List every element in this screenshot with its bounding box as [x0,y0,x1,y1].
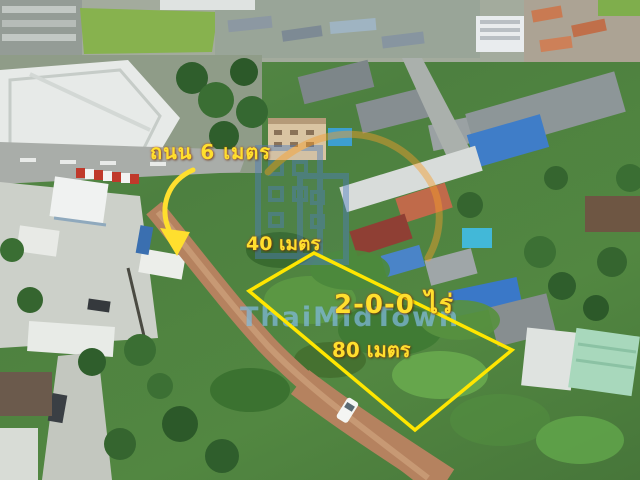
road-arrow-shaft [165,170,193,230]
road-arrow-head [160,228,190,256]
road-width-label: ถนน 6 เมตร [150,141,271,163]
frontage-label: 40 เมตร [246,234,321,255]
aerial-photo: ThaiMidTown ถนน 6 เมตร 40 เมตร 2-0-0 ไร่… [0,0,640,480]
depth-label: 80 เมตร [332,339,411,361]
plot-area-label: 2-0-0 ไร่ [334,291,454,320]
